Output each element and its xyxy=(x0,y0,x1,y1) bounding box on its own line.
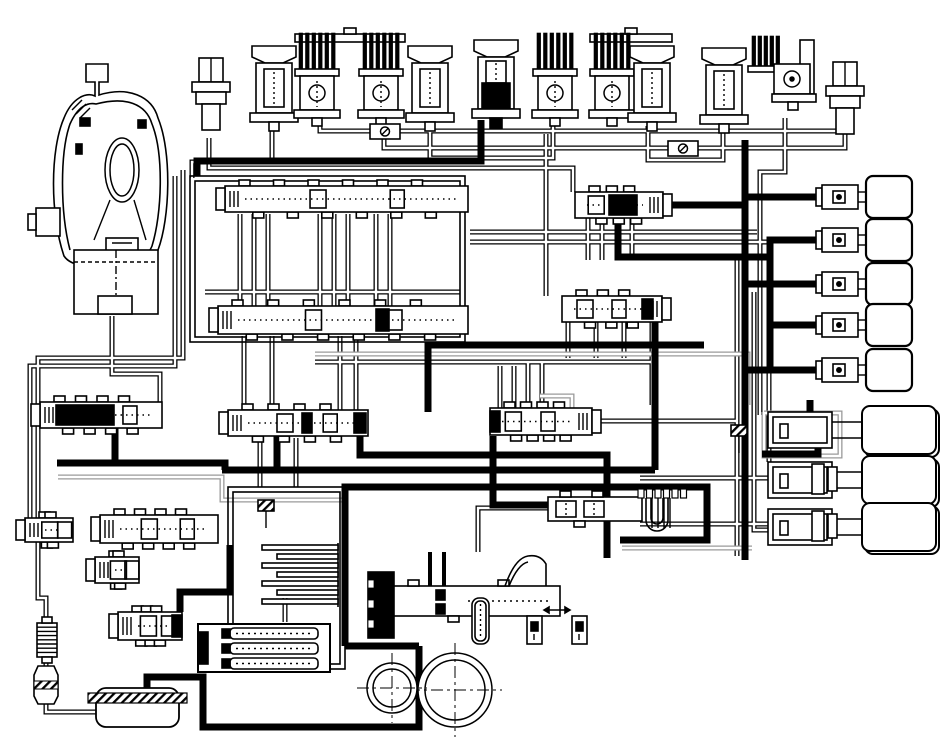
solenoid-5-energized xyxy=(472,40,520,128)
check-ball-valve-1 xyxy=(370,124,400,139)
solenoid-6 xyxy=(532,33,578,126)
modulator-valve xyxy=(31,396,162,434)
pipe-tk xyxy=(57,463,225,470)
pipe-tk xyxy=(663,197,816,205)
oil-pressure-switch xyxy=(826,62,864,134)
pipe-ch xyxy=(46,704,96,712)
solenoid-7 xyxy=(589,33,635,126)
transmission-case-section xyxy=(74,250,158,314)
hydraulic-circuit-diagram xyxy=(0,0,950,742)
sequence-valve xyxy=(219,404,368,442)
shift-valve-1 xyxy=(216,180,468,218)
solenoid-bracket-1 xyxy=(295,28,405,42)
clutch-actuator-5 xyxy=(816,349,912,391)
accumulator-2 xyxy=(768,456,939,507)
pipe-gch xyxy=(58,477,345,500)
clutch-actuator-2 xyxy=(816,219,912,261)
torque-converter xyxy=(28,64,168,266)
pipe-ch xyxy=(320,124,370,131)
cooler-filter xyxy=(34,666,58,704)
oil-cooler xyxy=(37,617,57,663)
separator-plate-ribs xyxy=(262,543,338,607)
solenoid-2 xyxy=(294,33,340,126)
clutch-actuator-1 xyxy=(816,176,912,218)
solenoid-3 xyxy=(358,33,404,126)
accumulator-1 xyxy=(768,406,939,457)
control-valve xyxy=(562,290,671,328)
pressure-regulator-assembly xyxy=(368,556,587,644)
solenoid-8 xyxy=(628,46,676,131)
lockup-solenoid xyxy=(748,36,816,110)
small-valve-3 xyxy=(86,551,139,589)
oil-pump-gears xyxy=(357,643,502,737)
pipe-gch xyxy=(58,477,345,500)
small-valve-1 xyxy=(16,512,73,548)
timing-valve xyxy=(490,402,601,441)
solenoid-4 xyxy=(406,46,454,131)
pipe-tk xyxy=(618,218,816,257)
accumulator-3 xyxy=(768,503,939,554)
clutch-actuator-3 xyxy=(816,263,912,305)
pipe-tk xyxy=(180,545,230,612)
relay-valve xyxy=(575,186,672,224)
relief-valve xyxy=(109,606,182,646)
temperature-sensor xyxy=(192,58,230,130)
shift-valve-2 xyxy=(209,300,468,340)
oil-pan-with-strainer xyxy=(88,688,187,727)
solenoid-9 xyxy=(700,48,748,133)
diagram-canvas xyxy=(0,0,950,742)
accumulator-piston-pack xyxy=(198,624,330,672)
clutch-actuator-4 xyxy=(816,304,912,346)
check-ball-valve-2 xyxy=(668,141,698,156)
pipe-ch xyxy=(478,508,548,552)
pipe-ch xyxy=(478,508,548,552)
small-valve-2 xyxy=(91,509,218,549)
solenoid-1 xyxy=(250,46,298,131)
strainer-flag-1 xyxy=(258,500,274,528)
